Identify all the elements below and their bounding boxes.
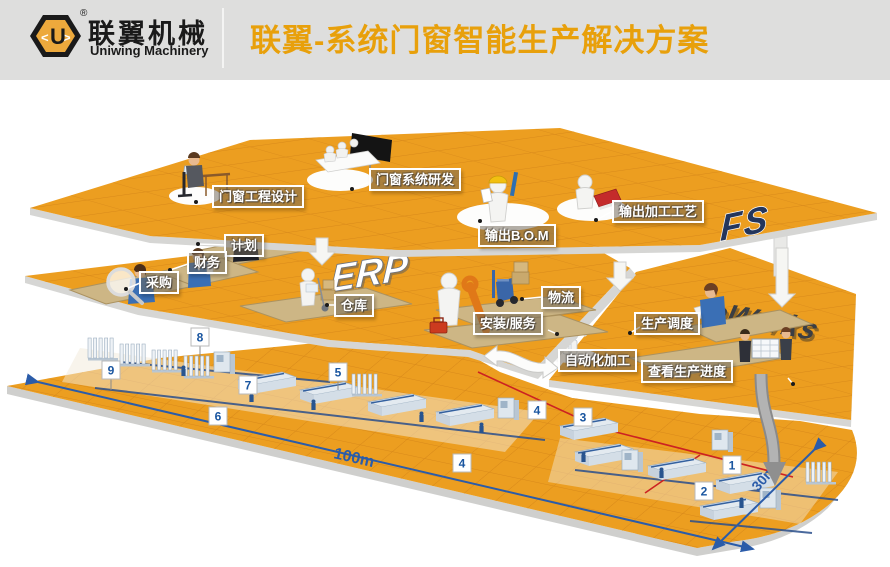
- scene-canvas: 100m 30m eWorks eWorks: [0, 0, 890, 567]
- station-marker-2: 2: [695, 482, 713, 500]
- svg-text:9: 9: [108, 364, 115, 378]
- station-marker-1: 1: [723, 456, 741, 474]
- station-marker-6: 6: [209, 407, 227, 425]
- svg-text:1: 1: [729, 459, 736, 473]
- label-scheduling: 生产调度: [634, 312, 700, 335]
- label-output-process: 输出加工工艺: [612, 200, 704, 223]
- station-marker-8: 8: [191, 328, 209, 357]
- label-output-bom: 输出B.O.M: [478, 224, 556, 247]
- svg-text:7: 7: [245, 379, 252, 393]
- svg-text:6: 6: [215, 410, 222, 424]
- station-marker-4: 4: [528, 401, 546, 419]
- label-warehouse: 仓库: [334, 294, 374, 317]
- label-logistics: 物流: [541, 286, 581, 309]
- label-auto-machining: 自动化加工: [558, 349, 637, 372]
- svg-text:4: 4: [534, 404, 541, 418]
- label-system-rnd: 门窗系统研发: [369, 168, 461, 191]
- station-marker-4b: 4: [453, 454, 471, 472]
- svg-text:2: 2: [701, 485, 708, 499]
- label-plan: 计划: [224, 234, 264, 257]
- station-marker-7: 7: [239, 376, 257, 394]
- svg-text:8: 8: [197, 331, 204, 345]
- svg-text:5: 5: [335, 366, 342, 380]
- design-layer: FS: [30, 128, 877, 276]
- solution-diagram: < > U ® 联翼机械 Uniwing Machinery 联翼-系统门窗智能…: [0, 0, 890, 567]
- svg-text:3: 3: [580, 411, 587, 425]
- label-install-service: 安装/服务: [473, 312, 543, 335]
- label-view-progress: 查看生产进度: [641, 360, 733, 383]
- label-engineering-design: 门窗工程设计: [212, 185, 304, 208]
- station-marker-3: 3: [574, 408, 592, 426]
- label-finance: 财务: [187, 251, 227, 274]
- svg-text:4: 4: [459, 457, 466, 471]
- label-purchase: 采购: [139, 271, 179, 294]
